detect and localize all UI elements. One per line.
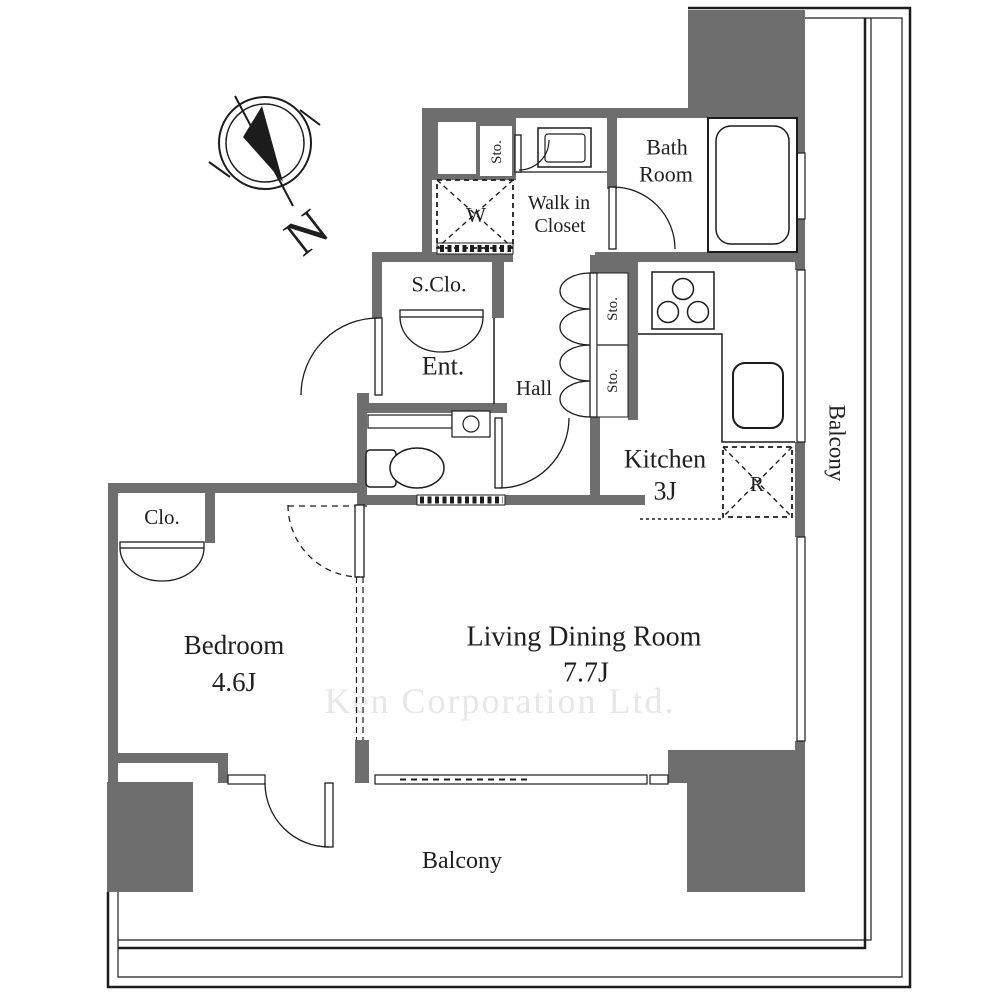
walk-in-closet-label-line1: Walk in [528,192,590,214]
shoe-closet-doors-bar [400,310,483,317]
compass-needle [243,106,283,182]
wall-kitchen-left [590,415,600,505]
wall-partition-stub [355,740,369,783]
wall-right-4 [795,741,805,750]
balcony-door-leaf [325,783,333,847]
bath-room-label-line2: Room [639,162,693,187]
walk-in-closet-label-line2: Closet [534,215,586,237]
hall-storage-door-bar [590,273,597,417]
storage-top-label: Sto. [489,140,505,164]
toilet-handbasin [452,411,490,437]
duct-space [438,122,476,174]
closet-doors-bar [120,542,204,548]
storage-1-label: Sto. [605,297,621,321]
toilet-bowl [390,448,444,488]
bedroom-label: Bedroom [184,630,285,660]
bedroom-door-leaf [355,505,364,577]
shoe-closet-label: S.Clo. [411,272,466,297]
bath-door-leaf [609,187,616,249]
hall-label: Hall [516,376,552,400]
closet-label: Clo. [144,505,180,529]
fridge-label: R [750,472,764,496]
toilet-door-leaf [495,418,502,488]
toilet-shelf [368,415,452,428]
shoe-closet-door-arc-left [400,317,441,352]
kitchen-size-label: 3J [653,477,676,506]
wall-right-3 [795,442,805,537]
pillar-bottom-left [107,782,193,892]
balcony-right-label: Balcony [825,405,850,482]
wall-junction [357,483,367,505]
storage-2-label: Sto. [605,369,621,393]
wall-sclo-left [372,252,382,318]
living-dining-size-label: 7.7J [563,658,609,689]
entrance-door-leaf [375,318,382,395]
wall-bedroom-bottom [108,753,228,763]
bedroom-window [228,775,265,784]
compass-north-label: N [275,199,340,267]
kitchen-window [797,270,805,442]
wall-clo-right [205,483,215,543]
bedroom-door-arc-dashed [288,505,360,577]
wall-left-connector [108,753,118,783]
entrance-label: Ent. [422,352,465,381]
wall-sclo-right [492,252,504,318]
kitchen-label: Kitchen [624,445,706,474]
floor-plan-svg: Ken Corporation Ltd. [0,0,1000,1000]
pillar-bottom-right-a [668,750,805,783]
floor-plan-page: Ken Corporation Ltd. [0,0,1000,1000]
wall-step [218,753,228,783]
washer-label: W [466,203,486,227]
washroom-door-leaf [515,135,521,172]
living-side-window [797,537,805,741]
living-window-small [650,775,668,784]
bath-door-arc [613,187,675,249]
wall-sto-right [628,255,638,420]
kitchen-sink [733,363,783,428]
toilet-door-arc [499,418,569,488]
hall-storage-bifold-arcs [560,273,590,417]
pillar-bottom-right-b [687,783,805,892]
wall-left-upper [422,108,432,258]
wall-bath-divider [607,112,617,189]
bath-room-label-line1: Bath [646,135,688,160]
living-dining-label: Living Dining Room [467,622,702,653]
closet-door-arc-left [120,548,162,581]
bedroom-size-label: 4.6J [212,667,256,697]
entrance-door-arc [301,318,378,395]
closet-door-arc-right [162,548,204,581]
pillar-top-right [688,10,805,108]
shoe-closet-door-arc-right [441,317,483,352]
wall-bedroom-left [108,483,118,763]
bath-window [797,153,805,219]
wall-bedroom-top [108,483,367,493]
compass: N [209,96,339,267]
watermark-text: Ken Corporation Ltd. [325,681,676,721]
bathtub-inner [716,126,789,244]
vanity-bowl [545,134,585,162]
balcony-bottom-label: Balcony [422,848,502,874]
balcony-door-arc [265,783,329,847]
